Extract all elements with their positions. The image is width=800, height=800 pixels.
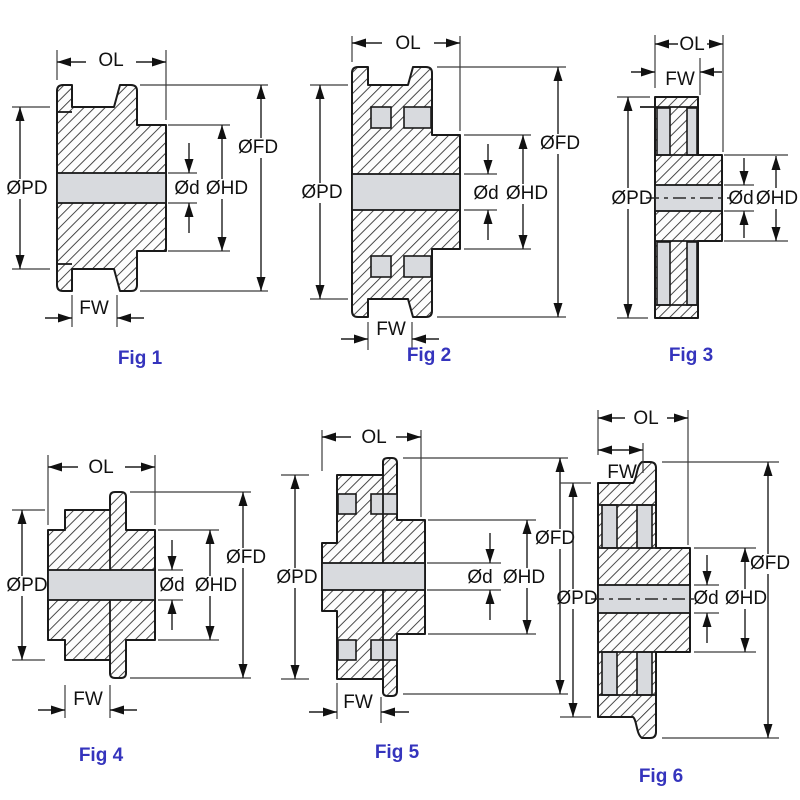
tooth-insert xyxy=(687,108,697,155)
pd-label: ØPD xyxy=(276,567,317,588)
d-label: Ød xyxy=(159,575,184,596)
ol-label: OL xyxy=(361,427,386,448)
fd-label: ØFD xyxy=(226,547,266,568)
figure-6: OL FW ØPD ØFD ØHD xyxy=(556,408,790,787)
pd-label: ØPD xyxy=(6,178,47,199)
figure-3: OL FW ØPD ØHD Ød Fig 3 xyxy=(611,34,798,366)
pd-label: ØPD xyxy=(611,188,652,209)
d-label: Ød xyxy=(693,588,718,609)
tooth-insert xyxy=(602,652,617,695)
dim-pd: ØPD xyxy=(6,107,50,269)
tooth-insert xyxy=(404,107,431,128)
dim-pd: ØPD xyxy=(556,483,597,717)
hd-label: ØHD xyxy=(506,183,548,204)
hd-label: ØHD xyxy=(503,567,545,588)
fw-label: FW xyxy=(73,689,103,710)
dim-fw: FW xyxy=(38,685,137,718)
tooth-insert xyxy=(637,505,652,548)
tooth-insert xyxy=(404,256,431,277)
fw-label: FW xyxy=(607,462,637,483)
dim-fw: FW xyxy=(631,58,722,95)
dim-pd: ØPD xyxy=(6,510,47,660)
fw-label: FW xyxy=(79,298,109,319)
diagram-page: OL ØPD ØFD ØHD Ød xyxy=(0,0,800,800)
dim-pd: ØPD xyxy=(276,475,317,679)
pd-label: ØPD xyxy=(6,575,47,596)
dim-pd: ØPD xyxy=(611,97,652,318)
dim-d: Ød xyxy=(724,158,754,238)
pd-label: ØPD xyxy=(301,182,342,203)
tooth-insert xyxy=(371,256,391,277)
tooth-insert xyxy=(657,108,670,155)
bore-band xyxy=(352,174,460,210)
figure-5: OL ØPD ØFD ØHD Ød xyxy=(276,427,575,763)
fd-label: ØFD xyxy=(750,553,790,574)
tooth-insert xyxy=(371,107,391,128)
ol-label: OL xyxy=(395,33,420,54)
tooth-insert xyxy=(371,494,397,514)
dim-d: Ød xyxy=(464,144,499,240)
d-label: Ød xyxy=(728,188,753,209)
tooth-insert xyxy=(637,652,652,695)
hd-label: ØHD xyxy=(725,588,767,609)
dim-d: Ød xyxy=(693,555,719,643)
dim-fw: FW xyxy=(598,443,643,483)
fd-label: ØFD xyxy=(535,528,575,549)
tooth-insert xyxy=(657,242,670,305)
fd-label: ØFD xyxy=(238,137,278,158)
fw-label: FW xyxy=(665,69,695,90)
ol-label: OL xyxy=(88,457,113,478)
tooth-insert xyxy=(338,640,356,660)
bore-band xyxy=(57,173,166,203)
figure-1: OL ØPD ØFD ØHD Ød xyxy=(6,50,278,369)
figure-caption: Fig 3 xyxy=(669,345,713,366)
d-label: Ød xyxy=(467,567,492,588)
hd-label: ØHD xyxy=(756,188,798,209)
hd-label: ØHD xyxy=(206,178,248,199)
tooth-insert xyxy=(687,242,697,305)
d-label: Ød xyxy=(473,183,498,204)
d-label: Ød xyxy=(174,178,199,199)
ol-label: OL xyxy=(679,34,704,55)
figure-2: OL ØPD ØFD ØHD Ød xyxy=(301,33,580,366)
figure-caption: Fig 2 xyxy=(407,345,451,366)
bore-band xyxy=(48,570,155,600)
dim-d: Ød xyxy=(168,143,200,233)
fw-label: FW xyxy=(343,692,373,713)
figure-caption: Fig 1 xyxy=(118,348,163,369)
tooth-insert xyxy=(338,494,356,514)
tooth-insert xyxy=(602,505,617,548)
pd-label: ØPD xyxy=(556,588,597,609)
fw-label: FW xyxy=(376,319,406,340)
dim-fw: FW xyxy=(45,295,144,327)
figure-caption: Fig 4 xyxy=(79,745,124,766)
figure-caption: Fig 5 xyxy=(375,742,420,763)
dim-d: Ød xyxy=(427,533,501,620)
hd-label: ØHD xyxy=(195,575,237,596)
diagram-canvas: OL ØPD ØFD ØHD Ød xyxy=(0,0,800,800)
bore-band xyxy=(322,563,425,590)
ol-label: OL xyxy=(633,408,658,429)
dim-pd: ØPD xyxy=(301,85,348,299)
figure-4: OL ØPD ØFD ØHD Ød xyxy=(6,455,266,766)
figure-caption: Fig 6 xyxy=(639,766,683,787)
tooth-insert xyxy=(371,640,397,660)
fd-label: ØFD xyxy=(540,133,580,154)
ol-label: OL xyxy=(98,50,123,71)
dim-d: Ød xyxy=(158,540,185,630)
